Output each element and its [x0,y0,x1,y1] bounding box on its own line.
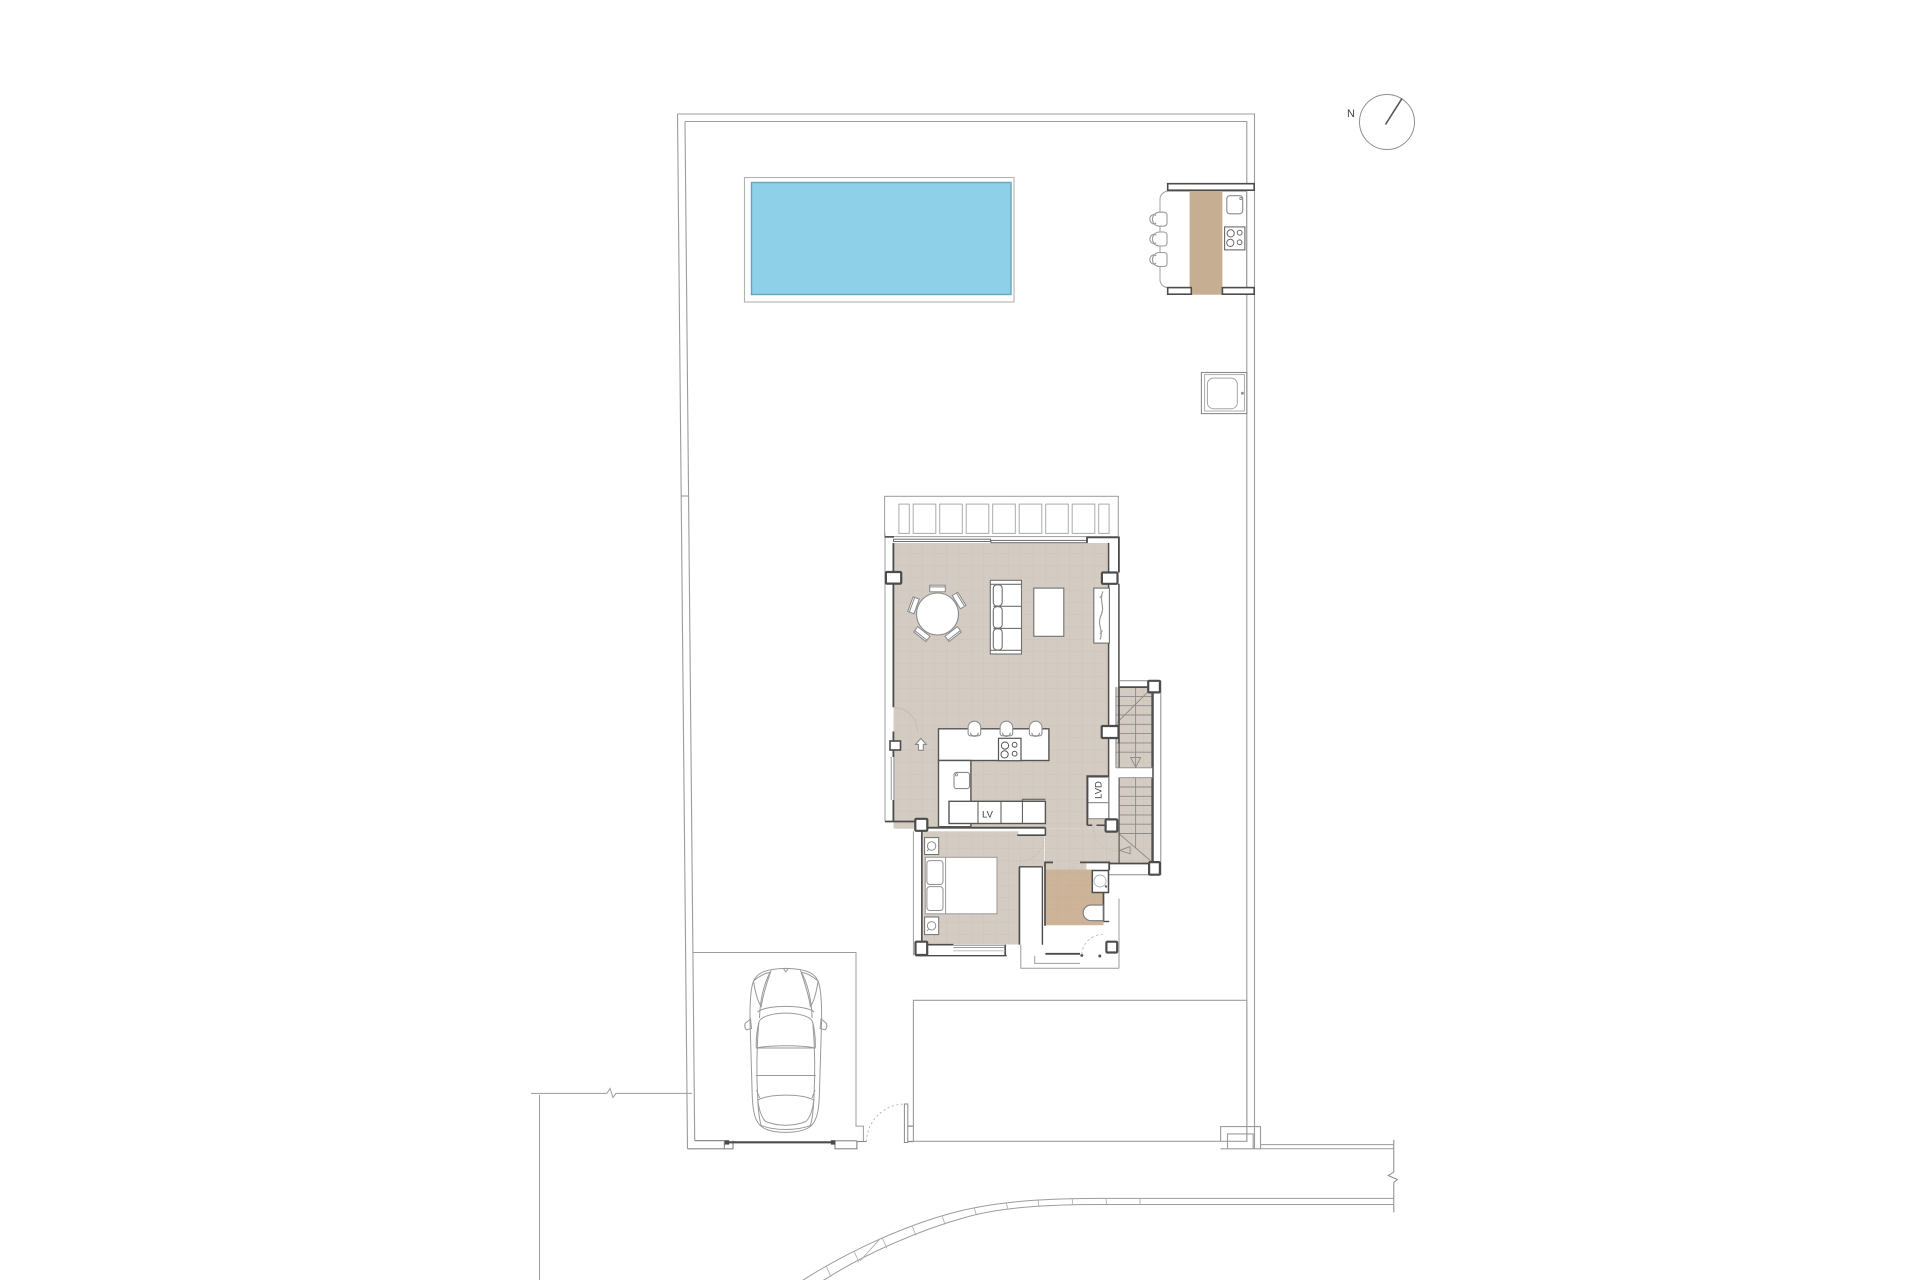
svg-text:LVD: LVD [1094,781,1105,799]
svg-text:LV: LV [982,810,994,821]
svg-text:N: N [1347,108,1355,120]
